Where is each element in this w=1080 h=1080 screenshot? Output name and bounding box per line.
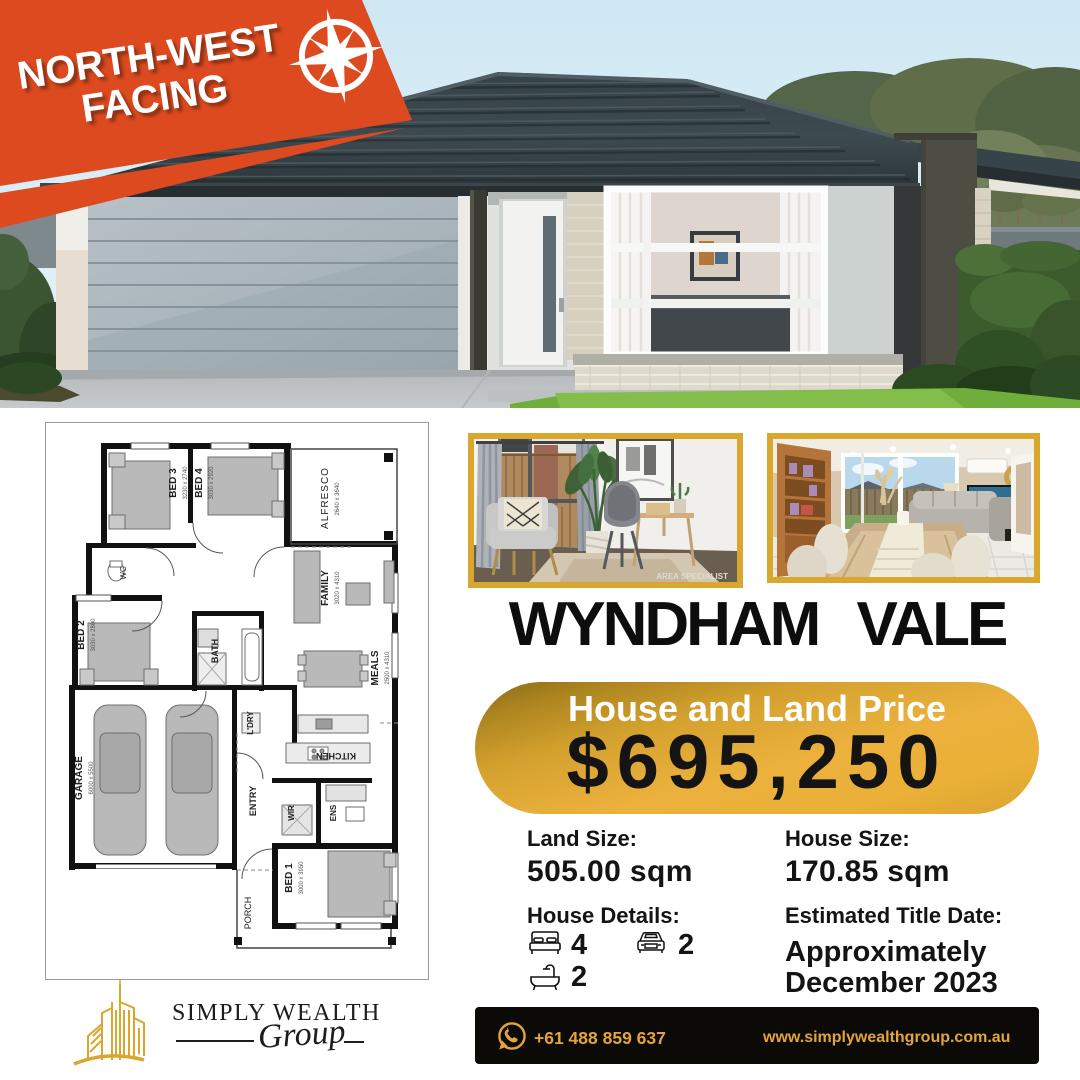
- svg-text:GARAGE: GARAGE: [74, 756, 85, 800]
- svg-text:PORCH: PORCH: [243, 897, 253, 930]
- svg-text:2500 x 4310: 2500 x 4310: [385, 651, 391, 685]
- svg-text:KITCHEN: KITCHEN: [316, 751, 356, 761]
- svg-text:3000 x 3950: 3000 x 3950: [299, 861, 305, 895]
- svg-text:FAMILY: FAMILY: [320, 570, 331, 606]
- svg-text:AREA SPECIALIST: AREA SPECIALIST: [656, 572, 728, 581]
- svg-text:BED 4: BED 4: [194, 468, 205, 498]
- svg-text:WC: WC: [119, 566, 128, 580]
- svg-text:L'DRY: L'DRY: [246, 711, 255, 735]
- svg-text:ENS: ENS: [329, 804, 338, 821]
- svg-text:ALFRESCO: ALFRESCO: [320, 467, 331, 529]
- svg-text:2640 x 3640: 2640 x 3640: [335, 482, 341, 516]
- svg-text:WIR: WIR: [287, 805, 296, 821]
- svg-text:BATH: BATH: [210, 639, 220, 663]
- svg-text:BED 2: BED 2: [76, 620, 87, 650]
- svg-text:3230 x 2740: 3230 x 2740: [183, 466, 189, 500]
- svg-text:ENTRY: ENTRY: [248, 786, 258, 816]
- svg-text:BED 1: BED 1: [284, 863, 295, 893]
- svg-text:MEALS: MEALS: [370, 650, 381, 685]
- svg-text:3030 x 2920: 3030 x 2920: [209, 466, 215, 500]
- svg-text:6000 x 5500: 6000 x 5500: [89, 761, 95, 795]
- svg-text:3030 x 2800: 3030 x 2800: [91, 618, 97, 652]
- svg-text:3020 x 4310: 3020 x 4310: [335, 571, 341, 605]
- svg-text:BED 3: BED 3: [168, 468, 179, 498]
